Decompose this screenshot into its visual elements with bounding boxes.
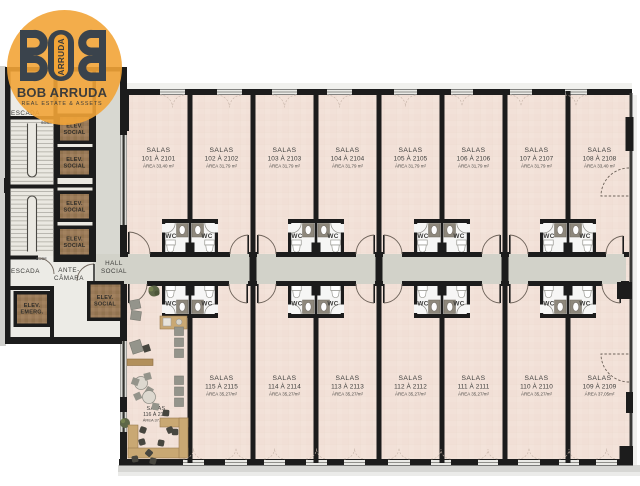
svg-text:WC: WC — [579, 233, 590, 240]
svg-text:SALAS: SALAS — [209, 147, 233, 154]
svg-text:SALAS: SALAS — [398, 375, 422, 382]
svg-text:106 À 2106: 106 À 2106 — [457, 154, 491, 163]
svg-text:SOBE: SOBE — [36, 257, 47, 261]
svg-text:ÁREA 31,79 m²: ÁREA 31,79 m² — [458, 163, 490, 169]
svg-text:SALAS: SALAS — [587, 375, 611, 382]
svg-text:REAL ESTATE & ASSETS: REAL ESTATE & ASSETS — [21, 101, 102, 107]
svg-text:WC: WC — [543, 301, 554, 308]
svg-text:ANTE-: ANTE- — [58, 267, 79, 274]
svg-text:ESCADA: ESCADA — [11, 268, 40, 275]
svg-text:SALAS: SALAS — [272, 375, 296, 382]
svg-text:WC: WC — [327, 301, 338, 308]
svg-text:ARRUDA: ARRUDA — [57, 38, 66, 75]
svg-text:112 À 2112: 112 À 2112 — [394, 382, 427, 391]
svg-text:ELEV.: ELEV. — [24, 303, 41, 309]
svg-text:108 À 2108: 108 À 2108 — [583, 154, 617, 163]
svg-text:111 À 2111: 111 À 2111 — [458, 382, 490, 391]
svg-text:WC: WC — [201, 301, 212, 308]
svg-text:ÁREA 35,27/m²: ÁREA 35,27/m² — [458, 391, 490, 397]
svg-text:113 À 2113: 113 À 2113 — [331, 382, 364, 391]
svg-text:ELEV.: ELEV. — [97, 295, 114, 301]
svg-text:ELEV.: ELEV. — [66, 201, 83, 207]
svg-text:ÁREA 35,27/m²: ÁREA 35,27/m² — [206, 391, 238, 397]
svg-text:ÁREA 33,40 m²: ÁREA 33,40 m² — [143, 163, 175, 169]
svg-text:WC: WC — [543, 233, 554, 240]
svg-text:SOCIAL: SOCIAL — [94, 302, 116, 308]
svg-text:ÁREA 31,79 m²: ÁREA 31,79 m² — [269, 163, 301, 169]
svg-text:SALAS: SALAS — [209, 375, 233, 382]
svg-text:ÁREA 35,27/m²: ÁREA 35,27/m² — [521, 391, 553, 397]
svg-text:SALAS: SALAS — [272, 147, 296, 154]
svg-text:ÁREA 35,27/m²: ÁREA 35,27/m² — [395, 391, 427, 397]
svg-text:WC: WC — [201, 233, 212, 240]
svg-text:103 À 2103: 103 À 2103 — [268, 154, 302, 163]
svg-text:WC: WC — [165, 301, 176, 308]
svg-text:SOCIAL: SOCIAL — [101, 268, 127, 275]
svg-text:101 À 2101: 101 À 2101 — [142, 154, 176, 163]
svg-text:SALAS: SALAS — [587, 147, 611, 154]
svg-text:ELEV.: ELEV. — [66, 236, 83, 242]
svg-text:109 À 2109: 109 À 2109 — [583, 382, 617, 391]
svg-text:CÂMARA: CÂMARA — [54, 273, 84, 282]
svg-text:ÁREA 33,40 m²: ÁREA 33,40 m² — [584, 163, 616, 169]
svg-text:WC: WC — [291, 233, 302, 240]
svg-text:BOB ARRUDA: BOB ARRUDA — [17, 85, 108, 100]
svg-text:WC: WC — [453, 233, 464, 240]
svg-text:SALAS: SALAS — [335, 147, 359, 154]
svg-text:107 À 2107: 107 À 2107 — [520, 154, 554, 163]
svg-text:ÁREA 35,27/m²: ÁREA 35,27/m² — [269, 391, 301, 397]
svg-text:WC: WC — [417, 301, 428, 308]
svg-text:WC: WC — [417, 233, 428, 240]
svg-text:SALAS: SALAS — [335, 375, 359, 382]
svg-text:ÁREA 31,79 m²: ÁREA 31,79 m² — [521, 163, 553, 169]
svg-text:SOCIAL: SOCIAL — [64, 243, 86, 249]
svg-text:EMERG.: EMERG. — [21, 310, 44, 316]
svg-text:ELEV.: ELEV. — [66, 157, 83, 163]
svg-text:SALAS: SALAS — [146, 147, 170, 154]
svg-text:ÁREA 31,79 m²: ÁREA 31,79 m² — [332, 163, 364, 169]
svg-text:102 À 2102: 102 À 2102 — [205, 154, 239, 163]
svg-text:WC: WC — [327, 233, 338, 240]
svg-text:WC: WC — [453, 301, 464, 308]
svg-text:ÁREA 31,79 m²: ÁREA 31,79 m² — [206, 163, 238, 169]
svg-text:WC: WC — [579, 301, 590, 308]
svg-text:SALAS: SALAS — [524, 375, 548, 382]
svg-text:WC: WC — [291, 301, 302, 308]
svg-text:SOCIAL: SOCIAL — [64, 207, 86, 213]
svg-text:SOCIAL: SOCIAL — [64, 164, 86, 170]
svg-text:ÁREA 31,79 m²: ÁREA 31,79 m² — [395, 163, 427, 169]
svg-text:104 À 2104: 104 À 2104 — [331, 154, 365, 163]
svg-text:SALAS: SALAS — [461, 375, 485, 382]
svg-text:SALAS: SALAS — [461, 147, 485, 154]
svg-text:SALAS: SALAS — [524, 147, 548, 154]
svg-text:105 À 2105: 105 À 2105 — [394, 154, 428, 163]
svg-text:ÁREA 37,05m²: ÁREA 37,05m² — [585, 391, 615, 397]
svg-text:SOCIAL: SOCIAL — [64, 130, 86, 136]
svg-text:ÁREA 35,27/m²: ÁREA 35,27/m² — [332, 391, 364, 397]
svg-text:WC: WC — [165, 233, 176, 240]
svg-text:110 À 2110: 110 À 2110 — [520, 382, 553, 391]
svg-text:114 À 2114: 114 À 2114 — [268, 382, 301, 391]
svg-text:HALL: HALL — [105, 260, 123, 267]
svg-text:SALAS: SALAS — [398, 147, 422, 154]
svg-text:115 À 2115: 115 À 2115 — [205, 382, 238, 391]
